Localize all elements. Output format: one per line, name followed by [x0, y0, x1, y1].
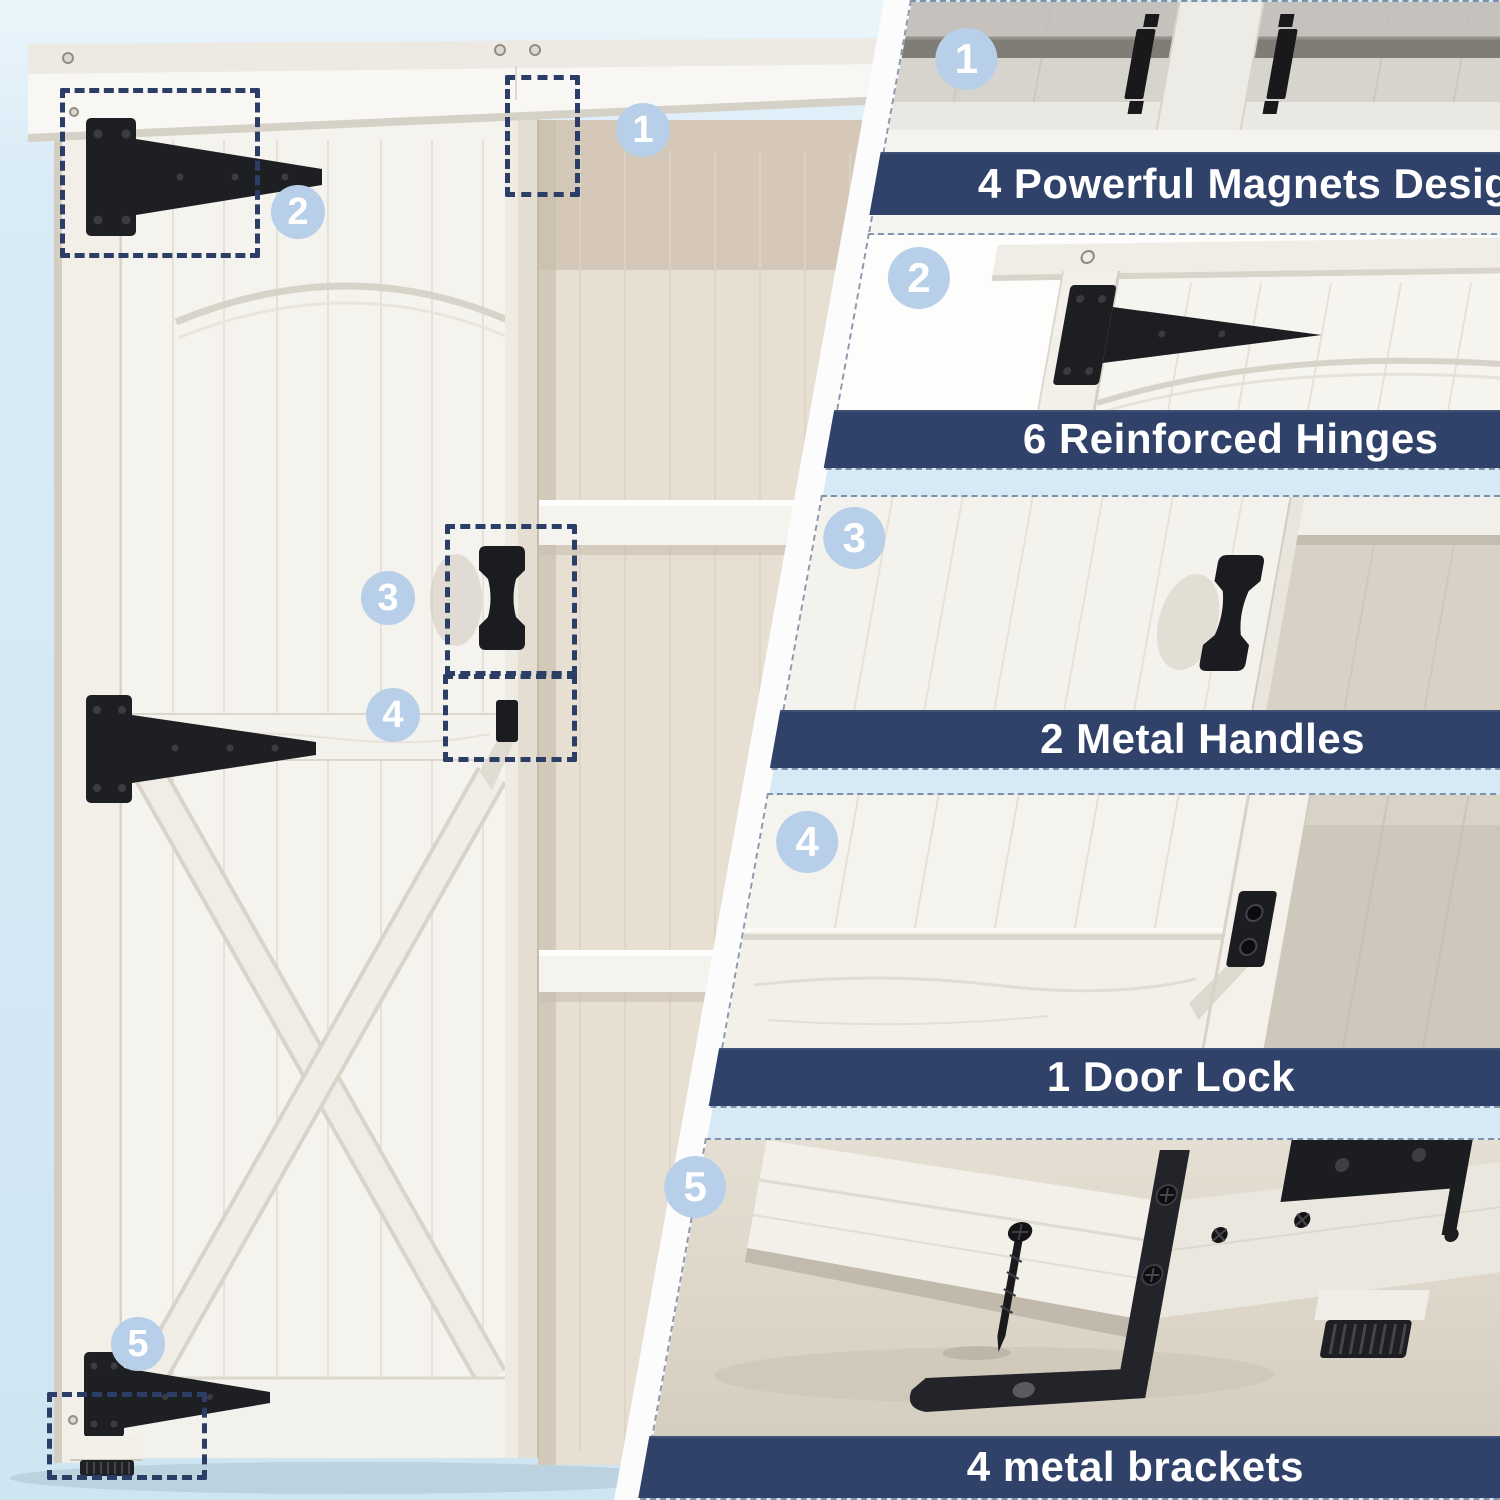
- callout-number: 4: [382, 694, 403, 737]
- callout-box-handle: [445, 524, 577, 676]
- feature-banner: 2 Metal Handles: [770, 710, 1500, 768]
- callout-box-magnets: [505, 75, 580, 197]
- callout-badge-4: 4: [366, 688, 420, 742]
- panel-number: 1: [955, 35, 978, 83]
- panel-badge-4: 4: [776, 811, 838, 873]
- panel-number: 2: [907, 254, 930, 302]
- barn-door: [122, 110, 518, 1458]
- banner-label: 4 Powerful Magnets Design: [978, 160, 1500, 208]
- callout-badge-2: 2: [271, 185, 325, 239]
- banner-label: 2 Metal Handles: [1040, 715, 1365, 763]
- panel-number: 5: [683, 1163, 706, 1211]
- banner-label: 1 Door Lock: [1047, 1053, 1295, 1101]
- panel-number: 3: [843, 514, 866, 562]
- feature-panel-magnets: 1 4 Powerful Magnets Design: [868, 0, 1500, 232]
- lock-closeup-illustration: [722, 795, 1500, 1052]
- panel-badge-1: 1: [935, 28, 997, 90]
- bracket-closeup-illustration: [653, 1140, 1500, 1440]
- callout-box-hinge: [60, 88, 260, 258]
- feature-banner: 6 Reinforced Hinges: [824, 410, 1500, 468]
- feature-banner: 4 Powerful Magnets Design: [869, 152, 1500, 215]
- feature-panel-door-lock: 4 1 Door Lock: [710, 793, 1500, 1108]
- feature-panel-brackets: 5 4 metal brackets: [640, 1138, 1500, 1500]
- callout-number: 2: [287, 191, 308, 234]
- panel-badge-2: 2: [888, 247, 950, 309]
- callout-number: 3: [377, 577, 398, 620]
- callout-number: 5: [127, 1323, 148, 1366]
- callout-number: 1: [632, 109, 653, 152]
- feature-banner: 1 Door Lock: [709, 1048, 1500, 1106]
- callout-box-bracket: [47, 1392, 207, 1480]
- handle-closeup-illustration: [784, 497, 1500, 714]
- callout-box-lock: [443, 674, 577, 762]
- callout-badge-5: 5: [111, 1317, 165, 1371]
- panel-number: 4: [795, 818, 818, 866]
- feature-banner: 4 metal brackets: [638, 1436, 1500, 1498]
- banner-label: 6 Reinforced Hinges: [1023, 415, 1439, 463]
- product-feature-infographic: 1 2 3 4 5: [0, 0, 1500, 1500]
- banner-label: 4 metal brackets: [967, 1443, 1304, 1491]
- feature-panel-hinges: 2 6 Reinforced Hinges: [825, 233, 1500, 470]
- callout-badge-1: 1: [616, 103, 670, 157]
- feature-panel-handles: 3 2 Metal Handles: [772, 495, 1500, 770]
- panel-badge-5: 5: [664, 1156, 726, 1218]
- panel-badge-3: 3: [823, 507, 885, 569]
- callout-badge-3: 3: [361, 571, 415, 625]
